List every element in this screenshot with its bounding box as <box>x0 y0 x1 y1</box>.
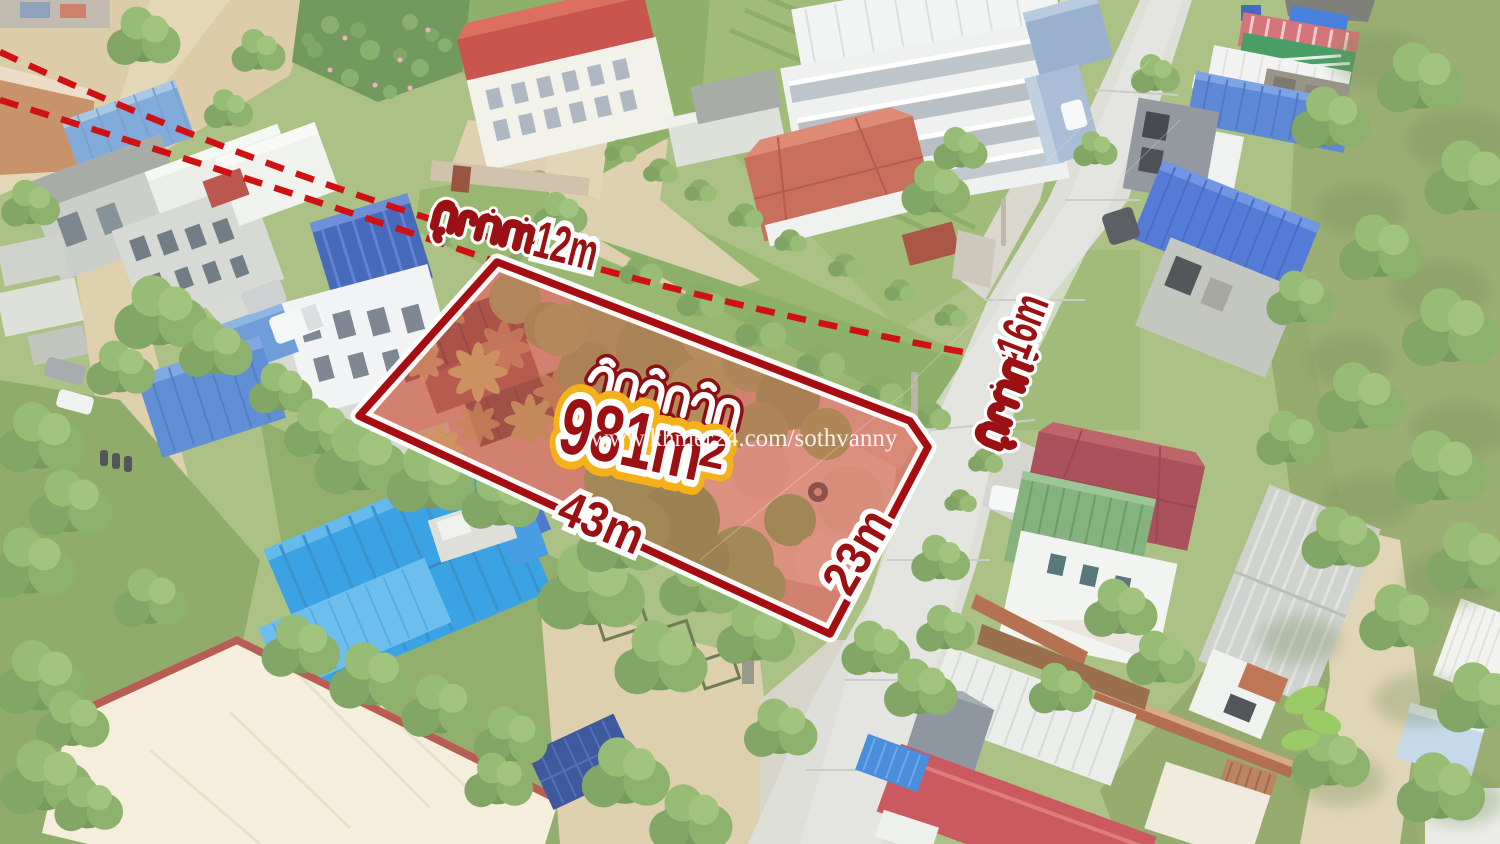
svg-text:www.khmer24.com/sothvanny: www.khmer24.com/sothvanny <box>591 425 898 452</box>
